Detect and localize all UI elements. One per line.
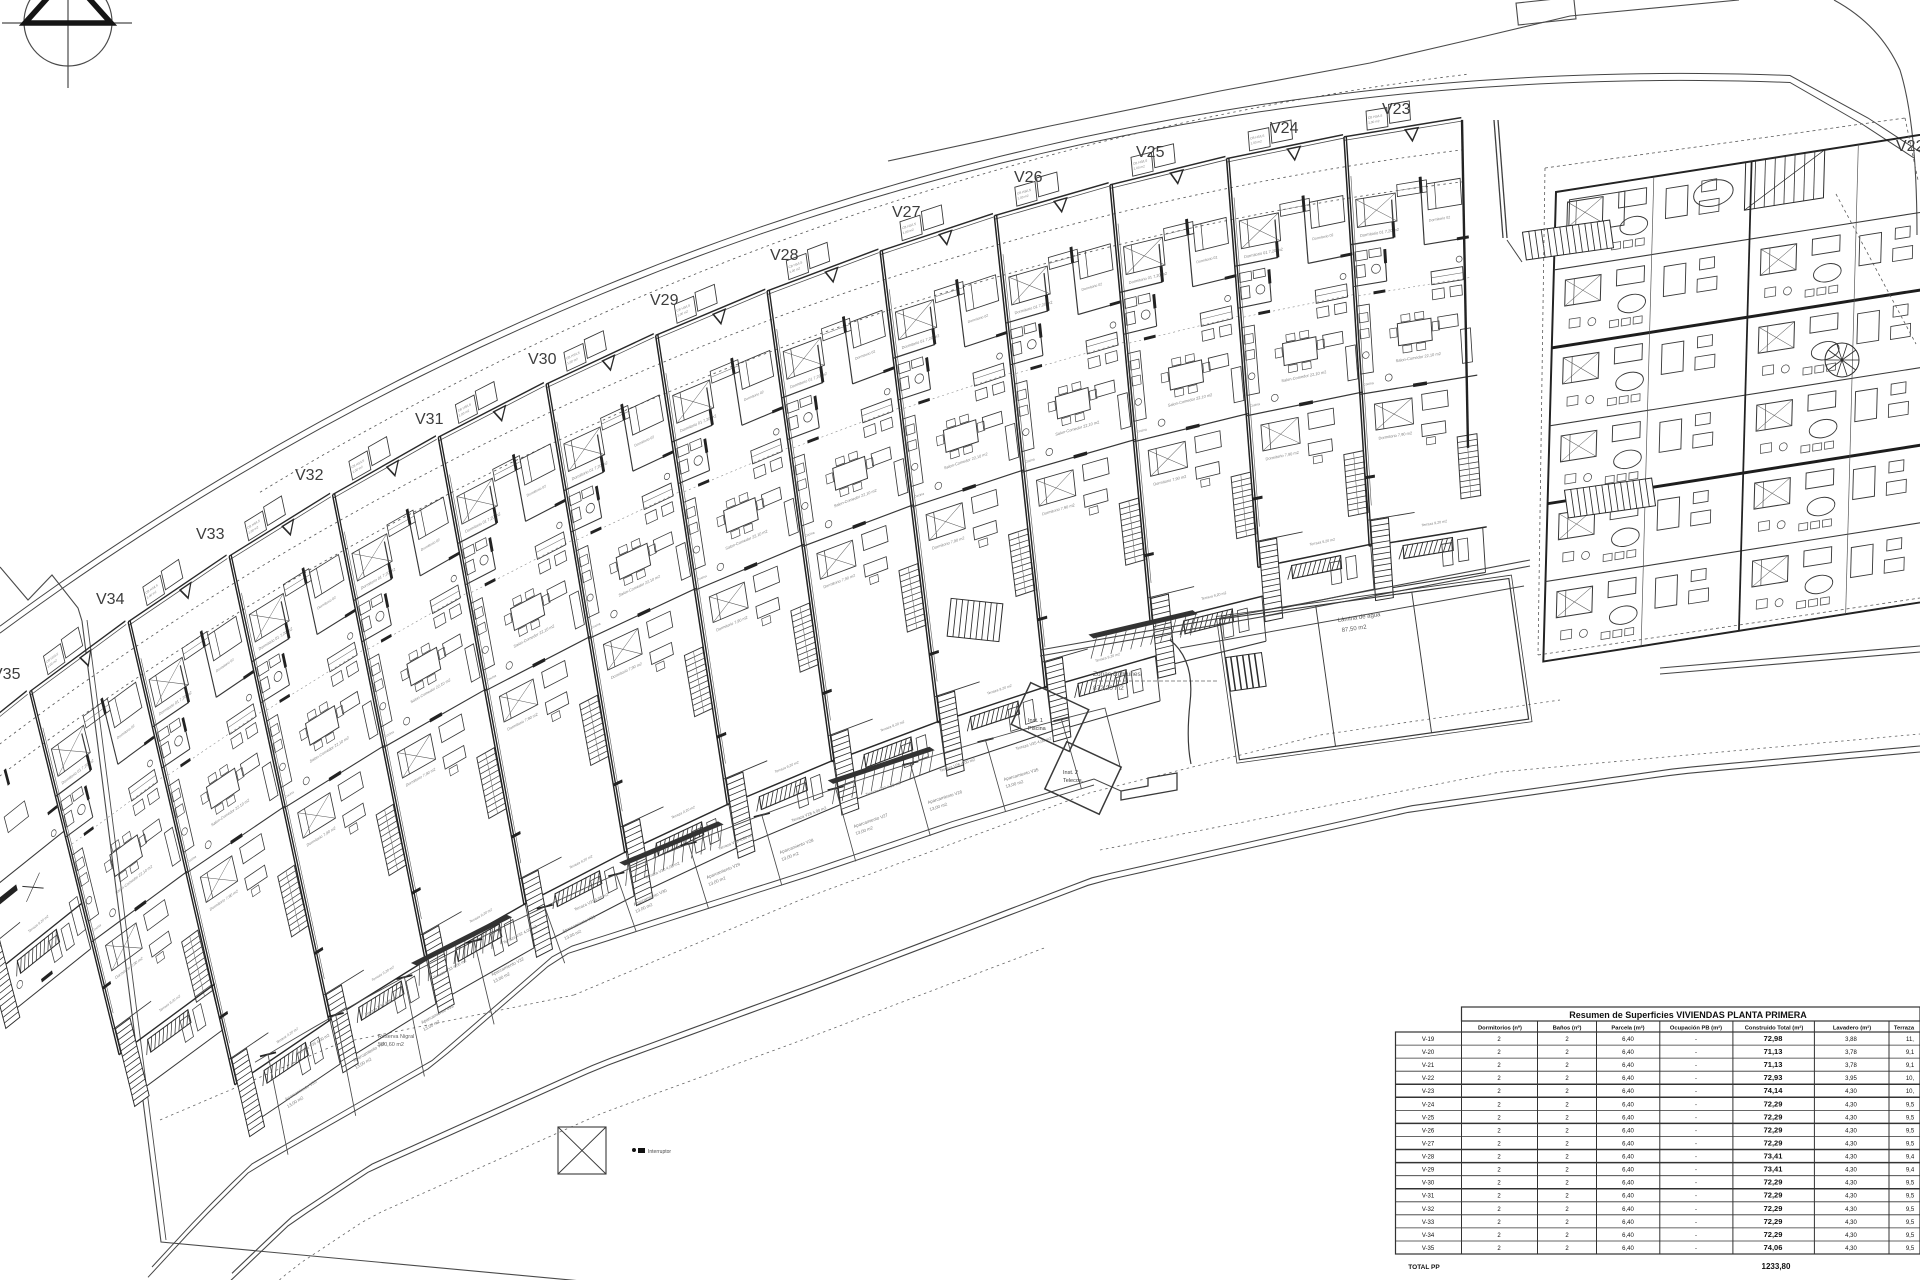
svg-text:V-27: V-27 xyxy=(1422,1142,1435,1148)
svg-text:9,5: 9,5 xyxy=(1906,1194,1915,1200)
svg-text:V25: V25 xyxy=(1136,144,1165,161)
svg-text:Parcela (m²): Parcela (m²) xyxy=(1611,1025,1644,1032)
svg-text:72,93: 72,93 xyxy=(1764,1073,1783,1082)
svg-text:-: - xyxy=(1695,1194,1697,1200)
svg-text:4,30: 4,30 xyxy=(1845,1089,1857,1095)
svg-text:9,5: 9,5 xyxy=(1906,1142,1915,1148)
svg-text:10,: 10, xyxy=(1906,1089,1915,1095)
svg-text:6,40: 6,40 xyxy=(1622,1220,1634,1226)
svg-text:-: - xyxy=(1695,1037,1697,1043)
svg-text:4,30: 4,30 xyxy=(1845,1194,1857,1200)
svg-text:-: - xyxy=(1695,1246,1697,1252)
svg-text:3,95: 3,95 xyxy=(1845,1076,1857,1082)
svg-text:9,1: 9,1 xyxy=(1906,1063,1915,1069)
svg-text:V31: V31 xyxy=(415,411,444,428)
svg-text:V-30: V-30 xyxy=(1422,1181,1435,1187)
svg-text:-: - xyxy=(1695,1220,1697,1226)
svg-text:4,30: 4,30 xyxy=(1845,1233,1857,1239)
svg-text:4,30: 4,30 xyxy=(1845,1155,1857,1161)
svg-text:6,40: 6,40 xyxy=(1622,1076,1634,1082)
svg-text:72,29: 72,29 xyxy=(1764,1099,1783,1108)
svg-text:-: - xyxy=(1695,1063,1697,1069)
svg-text:580,60 m2: 580,60 m2 xyxy=(378,1042,404,1048)
svg-text:-: - xyxy=(1695,1168,1697,1174)
svg-text:-: - xyxy=(1695,1050,1697,1056)
svg-text:11,: 11, xyxy=(1906,1037,1914,1043)
svg-text:V-35: V-35 xyxy=(1422,1246,1435,1252)
svg-text:V33: V33 xyxy=(196,526,225,543)
svg-text:V30: V30 xyxy=(528,351,557,368)
svg-text:9,5: 9,5 xyxy=(1906,1246,1915,1252)
svg-text:V-24: V-24 xyxy=(1422,1102,1435,1108)
svg-text:872,20 m2: 872,20 m2 xyxy=(1093,685,1124,692)
svg-text:74,06: 74,06 xyxy=(1764,1243,1783,1252)
svg-text:71,13: 71,13 xyxy=(1764,1060,1783,1069)
svg-text:9,5: 9,5 xyxy=(1906,1128,1915,1134)
svg-text:6,40: 6,40 xyxy=(1622,1233,1634,1239)
svg-text:6,40: 6,40 xyxy=(1622,1050,1634,1056)
svg-text:4,30: 4,30 xyxy=(1845,1128,1857,1134)
svg-text:73,41: 73,41 xyxy=(1764,1165,1783,1174)
svg-text:72,29: 72,29 xyxy=(1764,1204,1783,1213)
svg-text:-: - xyxy=(1695,1102,1697,1108)
svg-text:V-25: V-25 xyxy=(1422,1115,1435,1121)
svg-text:9,5: 9,5 xyxy=(1906,1181,1915,1187)
svg-text:3,88: 3,88 xyxy=(1845,1037,1857,1043)
svg-text:6,40: 6,40 xyxy=(1622,1063,1634,1069)
svg-text:72,29: 72,29 xyxy=(1764,1125,1783,1134)
svg-text:-: - xyxy=(1695,1115,1697,1121)
svg-text:9,1: 9,1 xyxy=(1906,1050,1915,1056)
svg-text:74,14: 74,14 xyxy=(1764,1086,1784,1095)
svg-text:V-26: V-26 xyxy=(1422,1128,1435,1134)
svg-text:Inst. 2: Inst. 2 xyxy=(1063,770,1078,776)
svg-text:10,: 10, xyxy=(1906,1076,1915,1082)
svg-text:V-19: V-19 xyxy=(1422,1037,1435,1043)
svg-text:6,40: 6,40 xyxy=(1622,1168,1634,1174)
svg-text:V23: V23 xyxy=(1382,101,1411,118)
svg-text:9,4: 9,4 xyxy=(1906,1168,1915,1174)
svg-text:V34: V34 xyxy=(96,591,125,608)
svg-text:73,41: 73,41 xyxy=(1764,1152,1783,1161)
svg-text:6,40: 6,40 xyxy=(1622,1142,1634,1148)
svg-text:6,40: 6,40 xyxy=(1622,1181,1634,1187)
svg-text:72,29: 72,29 xyxy=(1764,1112,1783,1121)
svg-text:9,5: 9,5 xyxy=(1906,1115,1915,1121)
svg-text:6,40: 6,40 xyxy=(1622,1128,1634,1134)
svg-text:TOTAL PP: TOTAL PP xyxy=(1408,1264,1440,1271)
svg-text:-: - xyxy=(1695,1207,1697,1213)
svg-text:72,29: 72,29 xyxy=(1764,1178,1783,1187)
svg-text:Terraza: Terraza xyxy=(1894,1026,1915,1032)
svg-text:Piscina: Piscina xyxy=(1028,726,1047,732)
svg-text:9,4: 9,4 xyxy=(1906,1155,1915,1161)
svg-text:6,40: 6,40 xyxy=(1622,1102,1634,1108)
svg-text:4,30: 4,30 xyxy=(1845,1115,1857,1121)
svg-text:Lavadero (m²): Lavadero (m²) xyxy=(1833,1025,1871,1032)
svg-text:6,40: 6,40 xyxy=(1622,1155,1634,1161)
svg-text:6,40: 6,40 xyxy=(1622,1194,1634,1200)
svg-text:V32: V32 xyxy=(295,467,324,484)
svg-text:Zonas Comunes: Zonas Comunes xyxy=(1093,671,1141,678)
svg-text:V28: V28 xyxy=(770,247,799,264)
svg-text:3,78: 3,78 xyxy=(1845,1063,1857,1069)
svg-text:Construido Total (m²): Construido Total (m²) xyxy=(1745,1025,1804,1032)
svg-text:V-31: V-31 xyxy=(1422,1194,1435,1200)
svg-text:Inst. 1: Inst. 1 xyxy=(1028,718,1043,724)
svg-text:V35: V35 xyxy=(0,666,21,683)
svg-text:V-32: V-32 xyxy=(1422,1207,1435,1213)
svg-text:V-28: V-28 xyxy=(1422,1155,1435,1161)
svg-text:9,5: 9,5 xyxy=(1906,1220,1915,1226)
svg-text:4,30: 4,30 xyxy=(1845,1207,1857,1213)
svg-text:V-21: V-21 xyxy=(1422,1063,1435,1069)
svg-text:9,5: 9,5 xyxy=(1906,1102,1915,1108)
svg-text:9,5: 9,5 xyxy=(1906,1207,1915,1213)
svg-text:Resumen de Superficies VIVIEND: Resumen de Superficies VIVIENDAS PLANTA … xyxy=(1569,1010,1807,1020)
svg-text:V27: V27 xyxy=(892,204,921,221)
svg-text:1233,80: 1233,80 xyxy=(1762,1262,1791,1271)
svg-text:Telecos.: Telecos. xyxy=(1063,778,1084,784)
svg-text:72,29: 72,29 xyxy=(1764,1139,1783,1148)
svg-text:V29: V29 xyxy=(650,292,679,309)
svg-text:4,30: 4,30 xyxy=(1845,1142,1857,1148)
svg-text:-: - xyxy=(1695,1089,1697,1095)
svg-text:V-20: V-20 xyxy=(1422,1050,1435,1056)
svg-text:V-23: V-23 xyxy=(1422,1089,1435,1095)
svg-text:4,30: 4,30 xyxy=(1845,1246,1857,1252)
svg-text:6,40: 6,40 xyxy=(1622,1207,1634,1213)
svg-text:Baños (nº): Baños (nº) xyxy=(1553,1026,1582,1032)
svg-text:V22: V22 xyxy=(1896,138,1920,155)
svg-text:3,78: 3,78 xyxy=(1845,1050,1857,1056)
svg-text:V-33: V-33 xyxy=(1422,1220,1435,1226)
svg-text:4,30: 4,30 xyxy=(1845,1220,1857,1226)
svg-text:-: - xyxy=(1695,1142,1697,1148)
svg-text:V26: V26 xyxy=(1014,169,1043,186)
svg-text:4,30: 4,30 xyxy=(1845,1102,1857,1108)
svg-text:-: - xyxy=(1695,1155,1697,1161)
svg-text:72,29: 72,29 xyxy=(1764,1230,1783,1239)
svg-text:V-22: V-22 xyxy=(1422,1076,1435,1082)
svg-text:-: - xyxy=(1695,1076,1697,1082)
svg-text:-: - xyxy=(1695,1233,1697,1239)
svg-text:6,40: 6,40 xyxy=(1622,1115,1634,1121)
svg-text:4,30: 4,30 xyxy=(1845,1168,1857,1174)
svg-text:Interruptor: Interruptor xyxy=(648,1149,671,1155)
svg-text:Reserva Nigral: Reserva Nigral xyxy=(378,1034,414,1040)
svg-text:6,40: 6,40 xyxy=(1622,1246,1634,1252)
svg-text:Ocupación PB (m²): Ocupación PB (m²) xyxy=(1670,1025,1722,1032)
svg-text:72,29: 72,29 xyxy=(1764,1191,1783,1200)
svg-text:71,13: 71,13 xyxy=(1764,1047,1783,1056)
svg-text:V24: V24 xyxy=(1270,120,1299,137)
svg-text:Dormitorios (nº): Dormitorios (nº) xyxy=(1478,1026,1522,1032)
svg-text:-: - xyxy=(1695,1181,1697,1187)
svg-text:4,30: 4,30 xyxy=(1845,1181,1857,1187)
svg-text:72,98: 72,98 xyxy=(1764,1034,1783,1043)
svg-text:9,5: 9,5 xyxy=(1906,1233,1915,1239)
svg-text:V-29: V-29 xyxy=(1422,1168,1435,1174)
svg-text:72,29: 72,29 xyxy=(1764,1217,1783,1226)
svg-text:-: - xyxy=(1695,1128,1697,1134)
svg-text:6,40: 6,40 xyxy=(1622,1089,1634,1095)
svg-text:V-34: V-34 xyxy=(1422,1233,1435,1239)
svg-text:6,40: 6,40 xyxy=(1622,1037,1634,1043)
